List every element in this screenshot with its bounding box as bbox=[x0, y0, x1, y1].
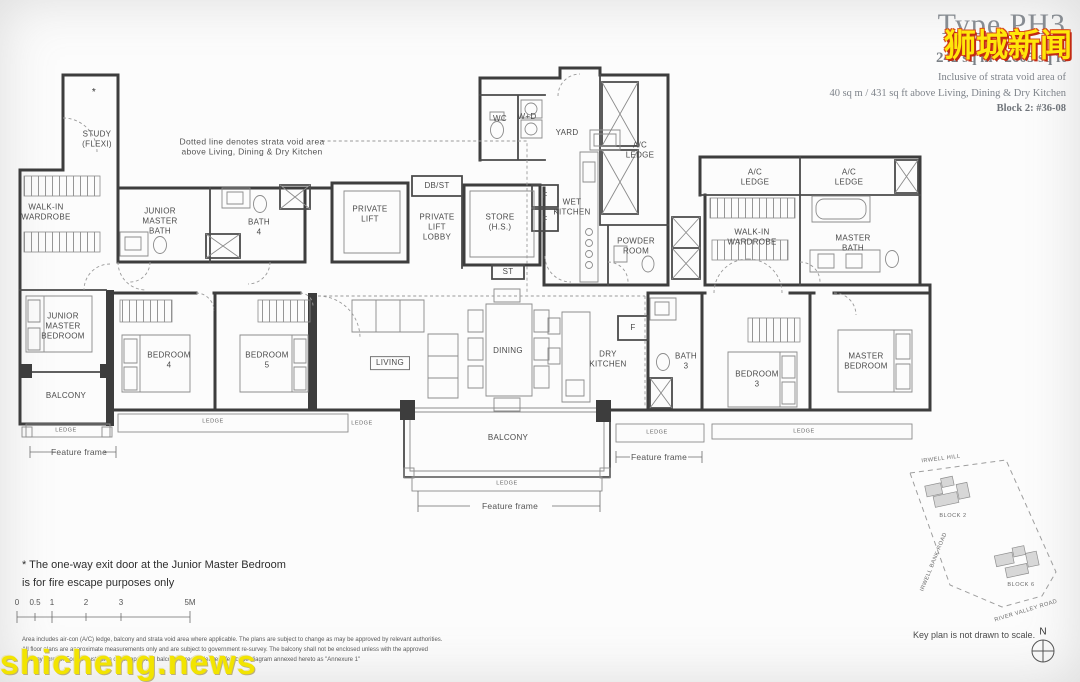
feature-frame-label-center: Feature frame bbox=[482, 501, 538, 511]
ledge-label-bedroom4: LEDGE bbox=[202, 419, 223, 426]
scale-tick-05: 0.5 bbox=[29, 598, 40, 607]
room-label-fridge-1: F bbox=[542, 191, 547, 201]
scale-tick-0: 0 bbox=[15, 598, 19, 607]
room-label-balcony-center: BALCONY bbox=[488, 433, 528, 443]
room-label-master-bedroom: MASTER BEDROOM bbox=[844, 351, 887, 371]
feature-frame-label-left: Feature frame bbox=[51, 447, 107, 457]
room-label-st: ST bbox=[503, 267, 514, 277]
wardrobe-hatching bbox=[24, 176, 800, 342]
room-label-w-d: W+D bbox=[518, 112, 537, 122]
key-plan-scale-note: Key plan is not drawn to scale. bbox=[913, 630, 1035, 640]
room-label-walk-in-wardrobe-right: WALK-IN WARDROBE bbox=[727, 227, 776, 247]
scale-tick-2: 2 bbox=[84, 598, 88, 607]
north-label: N bbox=[1039, 627, 1046, 638]
watermark-top-right: 狮城新闻 bbox=[944, 20, 1072, 66]
inclusive-note-line1: Inclusive of strata void area of bbox=[636, 70, 1066, 86]
feature-frame-label-right: Feature frame bbox=[631, 452, 687, 462]
floor-plan-page: * STUDY (FLEXI) WALK-IN WARDROBE JUNIOR … bbox=[0, 0, 1080, 682]
room-label-dry-kitchen: DRY KITCHEN bbox=[589, 349, 626, 369]
room-label-fridge-3: F bbox=[630, 323, 635, 333]
scale-tick-5m: 5M bbox=[184, 598, 195, 607]
ledge-label-center-left: LEDGE bbox=[351, 421, 372, 428]
inclusive-note-line2: 40 sq m / 431 sq ft above Living, Dining… bbox=[636, 86, 1066, 102]
room-label-walk-in-wardrobe-left: WALK-IN WARDROBE bbox=[21, 202, 70, 222]
watermark-bottom-left: shicheng.news bbox=[0, 644, 257, 682]
room-label-fridge-2: F bbox=[542, 215, 547, 225]
ledge-label-left: LEDGE bbox=[55, 428, 76, 435]
room-label-dining: DINING bbox=[493, 346, 523, 356]
room-label-ac-ledge-top: A/C LEDGE bbox=[626, 140, 655, 160]
room-label-bedroom-4: BEDROOM 4 bbox=[147, 350, 190, 370]
room-label-living: LIVING bbox=[370, 356, 410, 370]
room-label-powder-room: POWDER ROOM bbox=[617, 236, 655, 256]
room-label-master-bath: MASTER BATH bbox=[835, 233, 870, 253]
fire-escape-footnote: * The one-way exit door at the Junior Ma… bbox=[22, 557, 286, 592]
room-label-bedroom-5: BEDROOM 5 bbox=[245, 350, 288, 370]
ledge-label-bath3: LEDGE bbox=[646, 430, 667, 437]
room-label-wc: WC bbox=[493, 114, 507, 124]
room-label-private-lift: PRIVATE LIFT bbox=[352, 204, 387, 224]
strata-void-note: Dotted line denotes strata void area abo… bbox=[177, 137, 327, 158]
room-label-wet-kitchen: WET KITCHEN bbox=[553, 197, 590, 217]
room-label-junior-master-bedroom: JUNIOR MASTER BEDROOM bbox=[41, 311, 84, 340]
room-label-db-st: DB/ST bbox=[424, 181, 449, 191]
room-label-junior-master-bath: JUNIOR MASTER BATH bbox=[142, 206, 177, 235]
block-unit-number: Block 2: #36-08 bbox=[636, 103, 1066, 114]
room-label-private-lift-lobby: PRIVATE LIFT LOBBY bbox=[419, 212, 454, 241]
scale-bar bbox=[17, 611, 190, 623]
room-label-bath-4: BATH 4 bbox=[248, 217, 270, 237]
walls bbox=[20, 68, 930, 477]
room-label-bedroom-3: BEDROOM 3 bbox=[735, 369, 778, 389]
key-plan-block-2-label: BLOCK 2 bbox=[939, 513, 966, 519]
north-arrow-icon bbox=[1032, 640, 1054, 662]
room-label-bath-3: BATH 3 bbox=[675, 351, 697, 371]
key-plan-block-6-footprint bbox=[993, 543, 1040, 579]
room-label-study-flexi: STUDY (FLEXI) bbox=[82, 129, 112, 149]
scale-tick-3: 3 bbox=[119, 598, 123, 607]
room-label-balcony-left: BALCONY bbox=[46, 391, 86, 401]
key-plan-block-2-footprint bbox=[924, 473, 971, 508]
room-label-store: STORE (H.S.) bbox=[486, 212, 515, 232]
ledge-label-right: LEDGE bbox=[793, 429, 814, 436]
study-asterisk: * bbox=[92, 87, 96, 99]
scale-tick-1: 1 bbox=[50, 598, 54, 607]
room-label-ac-ledge-mid: A/C LEDGE bbox=[741, 167, 770, 187]
ledge-label-balcony: LEDGE bbox=[496, 481, 517, 488]
room-label-yard: YARD bbox=[556, 128, 579, 138]
room-label-ac-ledge-right: A/C LEDGE bbox=[835, 167, 864, 187]
key-plan-block-6-label: BLOCK 6 bbox=[1007, 582, 1034, 588]
